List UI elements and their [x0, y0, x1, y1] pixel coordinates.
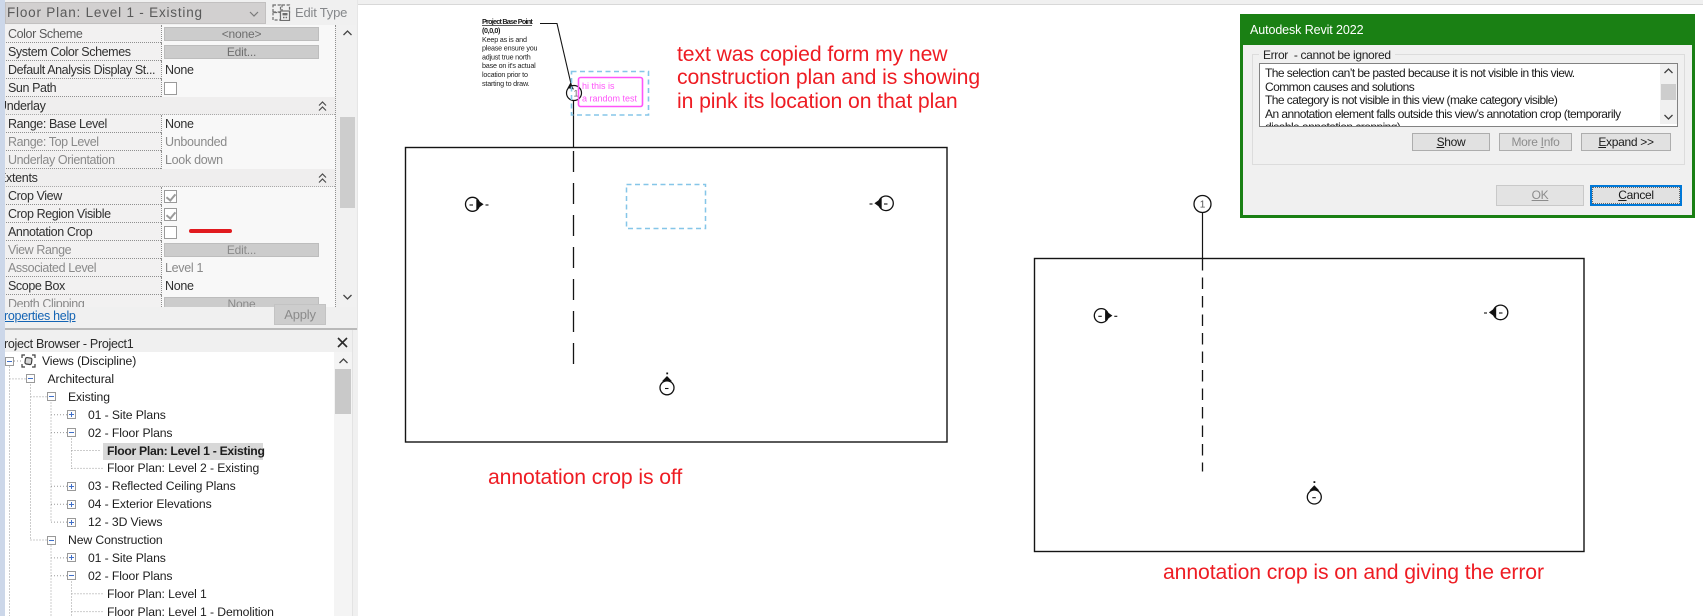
- svg-text:Project Base Point: Project Base Point: [482, 17, 533, 26]
- svg-text:hi this is: hi this is: [582, 81, 615, 91]
- svg-text:a random test: a random test: [582, 94, 638, 104]
- svg-text:(0,0,0): (0,0,0): [482, 26, 501, 35]
- svg-text:please ensure you: please ensure you: [482, 44, 538, 53]
- svg-text:adjust true north: adjust true north: [482, 52, 531, 61]
- svg-text:Keep as is and: Keep as is and: [482, 35, 527, 44]
- svg-text:starting to draw.: starting to draw.: [482, 79, 530, 88]
- svg-text:base on it's actual: base on it's actual: [482, 61, 536, 70]
- svg-text:location prior to: location prior to: [482, 70, 528, 79]
- svg-text:1: 1: [1200, 200, 1206, 211]
